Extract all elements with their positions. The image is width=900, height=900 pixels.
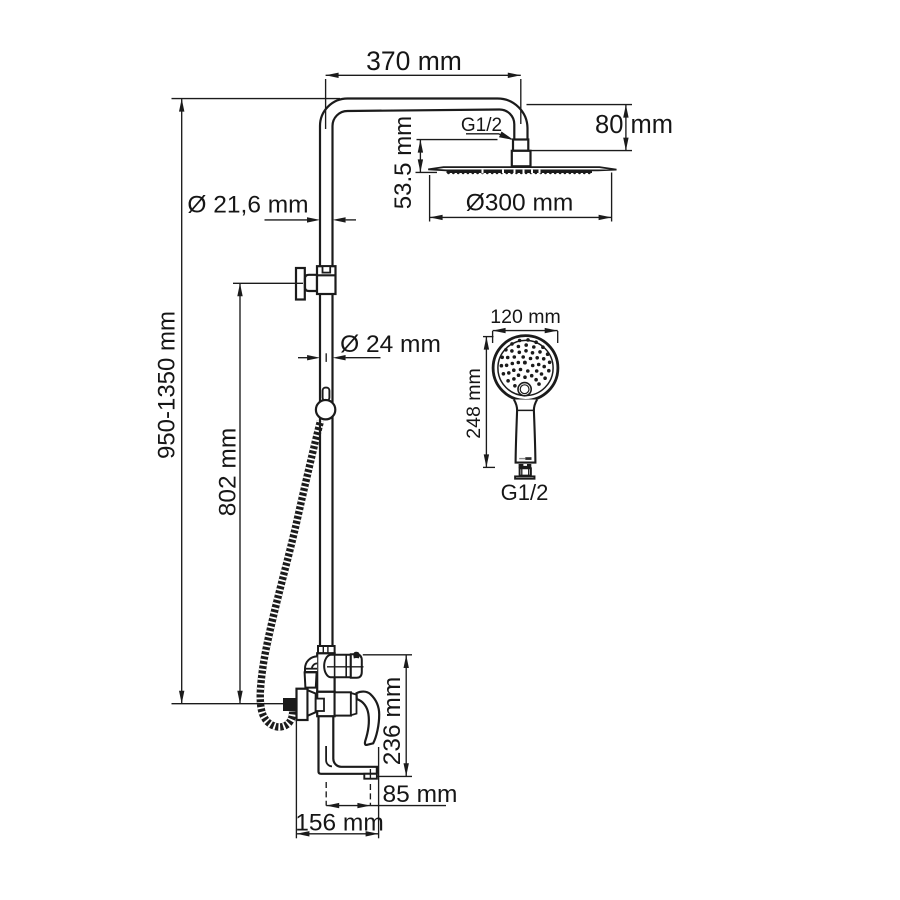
svg-text:156 mm: 156 mm [295, 810, 384, 837]
svg-text:248 mm: 248 mm [463, 368, 485, 438]
svg-text:120 mm: 120 mm [490, 306, 560, 328]
svg-text:Ø 24 mm: Ø 24 mm [340, 331, 441, 358]
svg-text:Ø300 mm: Ø300 mm [466, 190, 574, 217]
svg-text:950-1350 mm: 950-1350 mm [154, 311, 181, 459]
svg-text:G1/2: G1/2 [501, 480, 549, 505]
svg-text:53.5 mm: 53.5 mm [390, 116, 417, 209]
svg-text:85 mm: 85 mm [383, 781, 458, 808]
svg-text:370 mm: 370 mm [366, 46, 462, 76]
svg-text:G1/2: G1/2 [461, 115, 502, 136]
svg-text:236 mm: 236 mm [379, 677, 406, 766]
svg-text:80 mm: 80 mm [595, 111, 673, 139]
svg-text:Ø 21,6 mm: Ø 21,6 mm [187, 192, 308, 219]
svg-text:802 mm: 802 mm [215, 428, 242, 517]
